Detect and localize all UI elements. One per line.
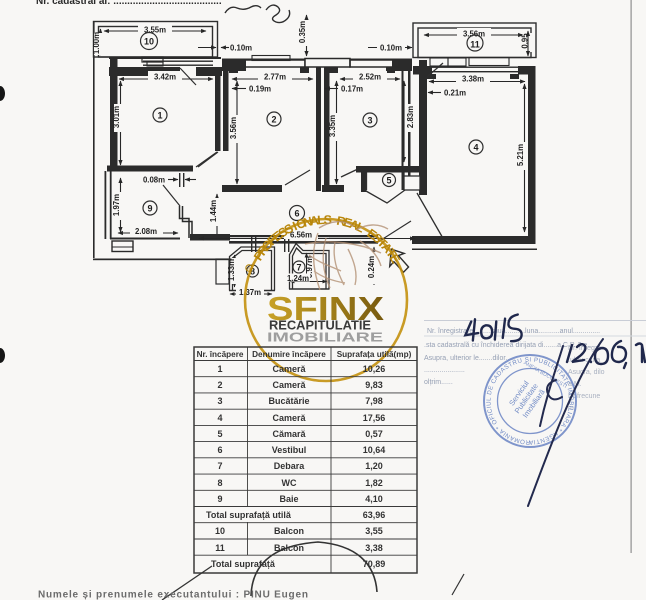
svg-text:2.08m: 2.08m (135, 227, 157, 236)
svg-text:Baie: Baie (279, 494, 298, 504)
svg-text:Debara: Debara (274, 461, 306, 471)
svg-text:0.10m: 0.10m (380, 44, 402, 53)
svg-text:Denumire încăpere: Denumire încăpere (252, 350, 326, 359)
svg-text:3,38: 3,38 (365, 543, 383, 553)
svg-text:9: 9 (217, 494, 222, 504)
svg-text:6: 6 (217, 445, 222, 455)
svg-text:1.37m: 1.37m (239, 288, 261, 297)
svg-text:3.56m: 3.56m (229, 117, 238, 139)
svg-text:7: 7 (296, 263, 301, 273)
svg-text:3.38m: 3.38m (462, 75, 484, 84)
svg-text:2.83m: 2.83m (406, 106, 415, 128)
svg-text:0.35m: 0.35m (298, 21, 307, 43)
svg-text:5.21m: 5.21m (516, 144, 525, 166)
svg-text:3: 3 (367, 116, 372, 126)
svg-text:1.00m: 1.00m (92, 32, 101, 54)
svg-text:3.35m: 3.35m (328, 115, 337, 137)
svg-text:0.24m: 0.24m (367, 256, 376, 278)
svg-text:Nr. cadastral al: ............: Nr. cadastral al: ......................… (36, 0, 222, 7)
svg-text:11: 11 (470, 40, 480, 50)
svg-text:0.21m: 0.21m (444, 89, 466, 98)
svg-text:10: 10 (215, 526, 225, 536)
svg-text:10,26: 10,26 (363, 364, 386, 374)
svg-text:4: 4 (473, 143, 478, 153)
svg-text:Cămară: Cămară (272, 429, 306, 439)
svg-text:1.97m: 1.97m (112, 194, 121, 216)
svg-text:70,89: 70,89 (363, 559, 386, 569)
svg-text:1: 1 (157, 111, 162, 121)
svg-text:10: 10 (144, 37, 154, 47)
svg-text:2.52m: 2.52m (359, 73, 381, 82)
svg-text:4,10: 4,10 (365, 494, 383, 504)
svg-text:1.44m: 1.44m (209, 200, 218, 222)
svg-text:3.01m: 3.01m (112, 106, 121, 128)
svg-text:4: 4 (217, 413, 222, 423)
svg-text:0,57: 0,57 (365, 429, 383, 439)
svg-text:Asucra, dilo: Asucra, dilo (568, 369, 605, 376)
svg-text:.....................: ..................... (424, 367, 465, 374)
svg-text:1.24m: 1.24m (287, 274, 309, 283)
svg-text:7,98: 7,98 (365, 396, 383, 406)
svg-text:Numele și prenumele executantu: Numele și prenumele executantului : PINU… (38, 590, 309, 600)
svg-text:0.17m: 0.17m (341, 85, 363, 94)
svg-text:2: 2 (271, 115, 276, 125)
svg-text:9: 9 (147, 204, 152, 214)
svg-text:olțrim......: olțrim...... (424, 379, 453, 386)
svg-text:17,56: 17,56 (363, 413, 386, 423)
svg-text:0.10m: 0.10m (230, 44, 252, 53)
svg-text:Vestibul: Vestibul (272, 445, 307, 455)
svg-text:1.33m: 1.33m (227, 259, 236, 281)
svg-text:7: 7 (217, 461, 222, 471)
svg-text:0.95: 0.95 (521, 33, 530, 49)
svg-text:Total suprafață utilă: Total suprafață utilă (206, 510, 292, 520)
svg-text:2.77m: 2.77m (264, 73, 286, 82)
svg-text:8: 8 (217, 478, 222, 488)
svg-text:63,96: 63,96 (363, 510, 386, 520)
svg-text:2: 2 (217, 380, 222, 390)
svg-text:Balcon: Balcon (274, 526, 304, 536)
svg-text:0.08m: 0.08m (143, 176, 165, 185)
svg-text:1,20: 1,20 (365, 461, 383, 471)
svg-text:WC: WC (282, 478, 297, 488)
svg-text:3.42m: 3.42m (154, 73, 176, 82)
svg-text:Suprafața utilă(mp): Suprafața utilă(mp) (337, 350, 412, 359)
svg-text:11: 11 (215, 543, 225, 553)
svg-text:9,83: 9,83 (365, 380, 383, 390)
svg-text:3,55: 3,55 (365, 526, 383, 536)
svg-text:Cameră: Cameră (272, 413, 306, 423)
svg-text:3: 3 (217, 396, 222, 406)
svg-text:0.19m: 0.19m (249, 85, 271, 94)
svg-text:1: 1 (217, 364, 222, 374)
svg-text:5: 5 (217, 429, 222, 439)
svg-text:3.56m: 3.56m (463, 30, 485, 39)
svg-text:Asupra, ulterior le.......dilo: Asupra, ulterior le.......dilor..... (424, 355, 515, 362)
svg-text:Bucătărie: Bucătărie (268, 396, 309, 406)
svg-text:IMOBILIARE: IMOBILIARE (267, 331, 383, 345)
svg-text:Cameră: Cameră (272, 364, 306, 374)
svg-text:RECAPITULATIE: RECAPITULATIE (269, 319, 371, 333)
svg-text:10,64: 10,64 (363, 445, 386, 455)
svg-text:Cameră: Cameră (272, 380, 306, 390)
svg-text:Nr. încăpere: Nr. încăpere (197, 350, 244, 359)
svg-text:1,82: 1,82 (365, 478, 383, 488)
svg-text:5: 5 (386, 176, 391, 186)
